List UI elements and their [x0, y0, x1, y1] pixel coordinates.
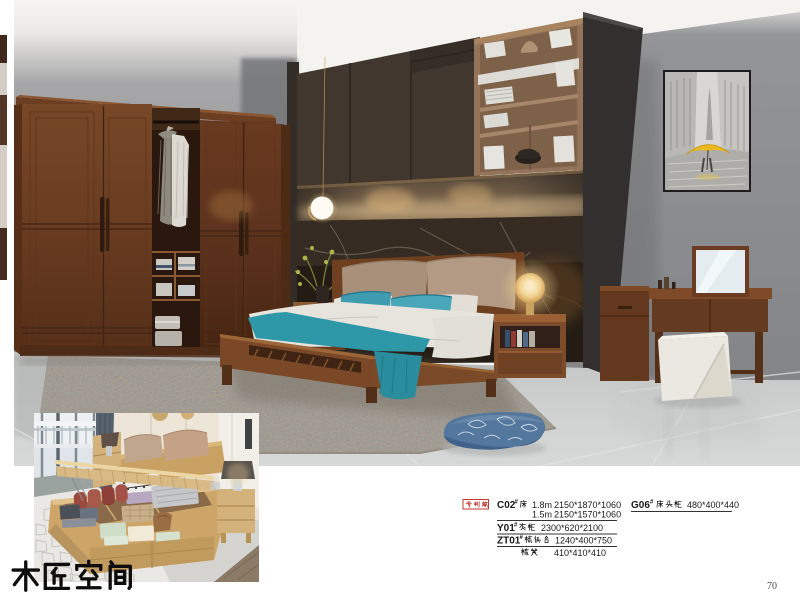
svg-text:G06: G06	[631, 500, 650, 511]
svg-text:2150*1870*1060: 2150*1870*1060	[554, 500, 621, 510]
svg-text:2150*1570*1060: 2150*1570*1060	[554, 510, 621, 520]
svg-text:Y01: Y01	[497, 523, 515, 534]
svg-text:1240*400*750: 1240*400*750	[555, 536, 612, 546]
svg-text:410*410*410: 410*410*410	[554, 548, 606, 558]
svg-text:1.5m: 1.5m	[532, 510, 552, 520]
svg-text:C02: C02	[497, 500, 516, 511]
svg-text:480*400*440: 480*400*440	[687, 500, 739, 510]
svg-text:70: 70	[767, 581, 777, 592]
svg-text:1.8m: 1.8m	[532, 500, 552, 510]
svg-text:2300*620*2100: 2300*620*2100	[541, 523, 603, 533]
svg-text:ZT01: ZT01	[497, 536, 521, 547]
